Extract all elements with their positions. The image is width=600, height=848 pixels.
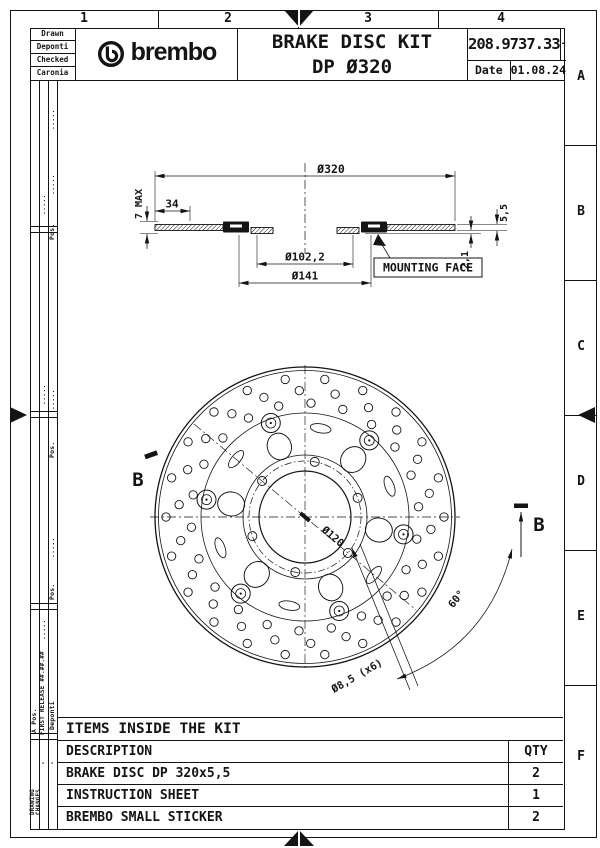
grid-divider: [565, 280, 597, 281]
grid-divider: [565, 415, 597, 416]
grid-row-label: C: [566, 338, 596, 356]
drawing-sheet: Ø320347 MAXØ102,2Ø141MOUNTING FACE5,52,1…: [0, 0, 600, 848]
approval-row: Caronia: [30, 67, 75, 80]
revision-strip-rule: [30, 739, 57, 740]
column-header-qty: QTY: [508, 741, 563, 762]
registration-mark-gap: [298, 10, 300, 27]
item-description: INSTRUCTION SHEET: [57, 785, 508, 806]
items-header-row: DESCRIPTION QTY: [57, 741, 563, 763]
revision-first-release: FIRST RELEASE ##.##.##: [40, 651, 46, 735]
revision-dots: .....: [40, 194, 47, 215]
revision-changes-label: CHANGES: [37, 789, 43, 815]
revision-author: Deponti: [49, 701, 56, 730]
revision-dots: .....: [40, 384, 47, 405]
table-row: BREMBO SMALL STICKER 2: [57, 807, 563, 830]
revision-pos-label: Pos.: [49, 224, 56, 240]
grid-row-label: B: [566, 203, 596, 221]
drawing-title-line1: BRAKE DISC KIT: [237, 30, 467, 55]
revision-strip-rule: [30, 411, 57, 412]
table-row: INSTRUCTION SHEET 1: [57, 785, 563, 807]
items-table-title: ITEMS INSIDE THE KIT: [57, 718, 563, 741]
revision-pos-label: Pos.: [49, 442, 56, 458]
item-description: BREMBO SMALL STICKER: [57, 807, 508, 830]
item-qty: 2: [508, 763, 563, 784]
sheet-inner-frame: [30, 28, 565, 830]
brembo-logo-text: brembo: [131, 38, 217, 70]
drawing-title-line2: DP Ø320: [237, 55, 467, 80]
part-number: 208.9737.33: [468, 28, 560, 60]
approval-row: Deponti: [30, 41, 75, 54]
grid-divider: [565, 550, 597, 551]
grid-divider: [438, 10, 439, 28]
item-description: BRAKE DISC DP 320x5,5: [57, 763, 508, 784]
grid-row-label: A: [566, 68, 596, 86]
column-header-description: DESCRIPTION: [57, 741, 508, 762]
brembo-logo-icon: [96, 39, 126, 69]
grid-row-label: F: [566, 748, 596, 766]
revision-dots: .....: [49, 109, 56, 130]
grid-column-label: 4: [481, 10, 521, 28]
grid-column-label: 2: [208, 10, 248, 28]
table-row: BRAKE DISC DP 320x5,5 2: [57, 763, 563, 785]
revision-strip-rule: [30, 609, 57, 610]
title-block: Drawn Deponti Checked Caronia brembo BRA…: [30, 28, 565, 81]
part-number-block: 208.9737.33 - Date 01.08.24: [467, 28, 566, 80]
date-value: 01.08.24: [510, 61, 566, 80]
items-table: ITEMS INSIDE THE KIT DESCRIPTION QTY BRA…: [57, 717, 563, 830]
grid-divider: [565, 685, 597, 686]
registration-arrow-left: [10, 407, 27, 423]
revision-pos-label: Pos.: [49, 584, 56, 600]
item-qty: 2: [508, 807, 563, 830]
revision-dash: -: [49, 761, 56, 765]
grid-divider: [158, 10, 159, 28]
revision-dots: .....: [49, 174, 56, 195]
revision-dots: .....: [49, 389, 56, 410]
revision-strip-rule: [30, 417, 57, 418]
registration-mark-gap: [298, 830, 300, 846]
grid-column-label: 3: [348, 10, 388, 28]
revision-dots: .....: [49, 537, 56, 558]
revision-dots: .....: [40, 619, 47, 640]
revision-a-pos: A Pos.: [31, 708, 38, 733]
revision-dash: -: [40, 761, 47, 765]
brembo-logo: brembo: [75, 28, 238, 80]
approval-row: Drawn: [30, 28, 75, 41]
grid-divider: [565, 145, 597, 146]
revision-code: -: [560, 28, 567, 60]
approvals-table: Drawn Deponti Checked Caronia: [30, 28, 76, 80]
drawing-title: BRAKE DISC KIT DP Ø320: [237, 28, 467, 80]
date-label: Date: [468, 61, 510, 80]
grid-row-label: E: [566, 608, 596, 626]
grid-column-label: 1: [64, 10, 104, 28]
revision-strip-rule: [30, 603, 57, 604]
approval-row: Checked: [30, 54, 75, 67]
item-qty: 1: [508, 785, 563, 806]
grid-row-label: D: [566, 473, 596, 491]
